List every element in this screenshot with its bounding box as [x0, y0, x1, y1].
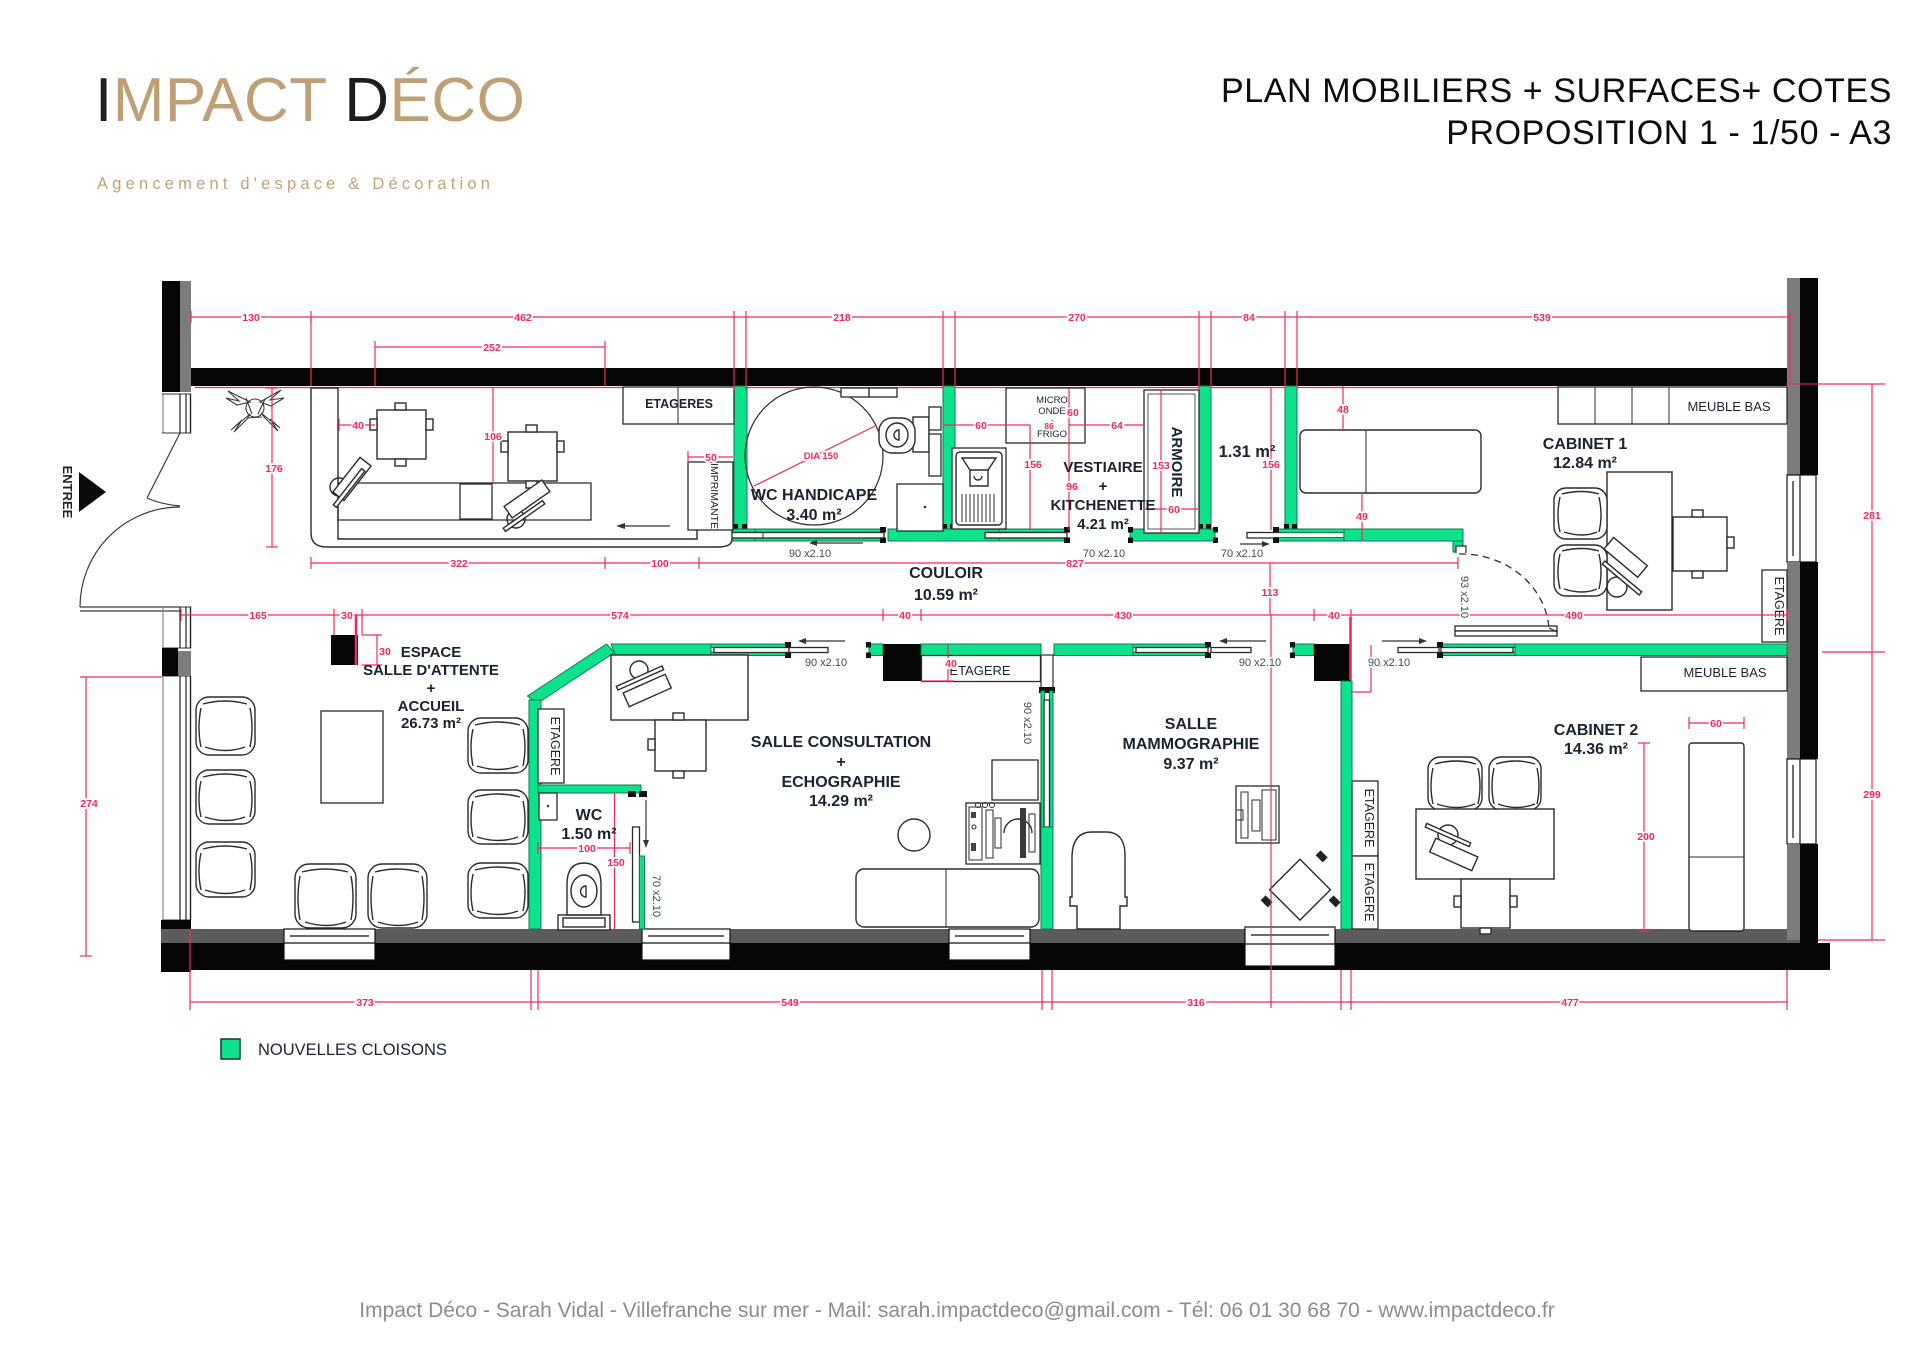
svg-text:WC: WC — [576, 807, 603, 824]
svg-text:549: 549 — [781, 997, 799, 1009]
svg-text:281: 281 — [1863, 510, 1881, 522]
svg-text:9.37 m²: 9.37 m² — [1163, 756, 1218, 773]
svg-text:200: 200 — [1637, 831, 1655, 843]
svg-text:ENTREE: ENTREE — [60, 466, 75, 519]
svg-text:14.36 m²: 14.36 m² — [1564, 741, 1628, 758]
svg-text:156: 156 — [1024, 459, 1042, 471]
svg-text:1.50 m²: 1.50 m² — [561, 826, 616, 843]
svg-text:ESPACE: ESPACE — [401, 644, 462, 661]
svg-text:86: 86 — [1044, 421, 1054, 431]
svg-text:539: 539 — [1533, 312, 1551, 324]
svg-text:30: 30 — [379, 646, 391, 658]
svg-text:CABINET 2: CABINET 2 — [1554, 722, 1639, 739]
svg-text:WC HANDICAPE: WC HANDICAPE — [751, 487, 878, 504]
svg-text:ETAGERE: ETAGERE — [1362, 789, 1376, 848]
svg-text:252: 252 — [483, 342, 501, 354]
svg-text:40: 40 — [899, 610, 911, 622]
svg-text:+: + — [836, 754, 845, 771]
svg-text:477: 477 — [1561, 997, 1579, 1009]
svg-text:+: + — [1099, 478, 1108, 495]
svg-text:NOUVELLES CLOISONS: NOUVELLES CLOISONS — [258, 1041, 447, 1059]
svg-text:49: 49 — [1356, 511, 1368, 523]
svg-text:70 x2.10: 70 x2.10 — [650, 875, 662, 917]
svg-text:373: 373 — [356, 997, 374, 1009]
svg-text:MEUBLE BAS: MEUBLE BAS — [1683, 665, 1766, 680]
svg-text:100: 100 — [578, 843, 596, 855]
svg-text:3.40 m²: 3.40 m² — [786, 507, 841, 524]
svg-text:90 x2.10: 90 x2.10 — [1239, 657, 1281, 669]
svg-text:PLAN MOBILIERS + SURFACES+ COT: PLAN MOBILIERS + SURFACES+ COTES — [1221, 72, 1892, 110]
svg-text:574: 574 — [611, 610, 629, 622]
svg-text:60: 60 — [1710, 718, 1722, 730]
svg-text:93 x2.10: 93 x2.10 — [1458, 576, 1470, 618]
svg-text:ONDE: ONDE — [1038, 406, 1065, 417]
svg-text:827: 827 — [1066, 558, 1084, 570]
svg-text:CABINET 1: CABINET 1 — [1543, 436, 1628, 453]
svg-text:SALLE CONSULTATION: SALLE CONSULTATION — [751, 734, 931, 751]
svg-text:10.59 m²: 10.59 m² — [914, 587, 978, 604]
svg-text:ETAGERE: ETAGERE — [548, 717, 562, 776]
svg-text:4.21 m²: 4.21 m² — [1077, 516, 1129, 533]
svg-text:DIA 150: DIA 150 — [804, 451, 839, 462]
svg-text:COULOIR: COULOIR — [909, 565, 983, 582]
svg-text:+: + — [427, 680, 436, 697]
svg-text:ETAGERE: ETAGERE — [1772, 577, 1786, 636]
svg-text:299: 299 — [1863, 789, 1881, 801]
svg-text:322: 322 — [450, 558, 468, 570]
svg-text:153: 153 — [1152, 460, 1170, 472]
svg-text:84: 84 — [1243, 312, 1255, 324]
svg-text:ETAGERES: ETAGERES — [645, 397, 713, 411]
svg-text:60: 60 — [975, 420, 987, 432]
svg-text:14.29 m²: 14.29 m² — [809, 793, 873, 810]
svg-text:MEUBLE BAS: MEUBLE BAS — [1687, 399, 1770, 414]
svg-text:113: 113 — [1262, 587, 1279, 599]
svg-text:ARMOIRE: ARMOIRE — [1168, 427, 1185, 498]
svg-text:ETAGERE: ETAGERE — [1362, 863, 1376, 922]
svg-text:64: 64 — [1111, 420, 1123, 432]
svg-text:40: 40 — [945, 658, 957, 670]
svg-text:60: 60 — [1168, 504, 1180, 516]
svg-text:26.73 m²: 26.73 m² — [401, 715, 461, 732]
svg-text:96: 96 — [1066, 481, 1078, 493]
svg-text:ETAGERE: ETAGERE — [949, 663, 1010, 678]
svg-text:90 x2.10: 90 x2.10 — [1368, 657, 1410, 669]
svg-text:48: 48 — [1337, 404, 1349, 416]
svg-text:Impact Déco - Sarah Vidal - Vi: Impact Déco - Sarah Vidal - Villefranche… — [359, 1299, 1554, 1322]
svg-text:ACCUEIL: ACCUEIL — [398, 698, 465, 715]
svg-text:1.31 m²: 1.31 m² — [1219, 443, 1276, 461]
svg-text:40: 40 — [352, 420, 364, 432]
svg-text:KITCHENETTE: KITCHENETTE — [1051, 497, 1156, 514]
svg-text:60: 60 — [1067, 407, 1079, 419]
svg-text:150: 150 — [607, 857, 625, 869]
svg-text:SALLE: SALLE — [1165, 716, 1218, 733]
svg-text:130: 130 — [242, 312, 260, 324]
svg-text:270: 270 — [1068, 312, 1086, 324]
svg-text:70 x2.10: 70 x2.10 — [1083, 548, 1125, 560]
svg-text:90 x2.10: 90 x2.10 — [789, 548, 831, 560]
svg-text:90 x2.10: 90 x2.10 — [805, 657, 847, 669]
svg-text:PROPOSITION 1 - 1/50 - A3: PROPOSITION 1 - 1/50 - A3 — [1446, 114, 1892, 152]
svg-text:MICRO: MICRO — [1036, 395, 1068, 406]
svg-text:490: 490 — [1565, 610, 1583, 622]
svg-text:30: 30 — [341, 610, 353, 622]
svg-text:SALLE D'ATTENTE: SALLE D'ATTENTE — [363, 662, 499, 679]
svg-text:MAMMOGRAPHIE: MAMMOGRAPHIE — [1123, 736, 1260, 753]
svg-text:70 x2.10: 70 x2.10 — [1221, 548, 1263, 560]
svg-text:165: 165 — [249, 610, 267, 622]
svg-text:40: 40 — [1328, 610, 1340, 622]
svg-text:462: 462 — [514, 312, 532, 324]
svg-text:430: 430 — [1114, 610, 1132, 622]
svg-text:Agencement d'espace & Décorati: Agencement d'espace & Décoration — [97, 175, 494, 193]
svg-text:316: 316 — [1187, 997, 1205, 1009]
svg-text:176: 176 — [265, 463, 283, 475]
svg-text:106: 106 — [484, 431, 502, 443]
svg-text:12.84 m²: 12.84 m² — [1553, 455, 1617, 472]
svg-text:ECHOGRAPHIE: ECHOGRAPHIE — [781, 774, 900, 791]
svg-text:100: 100 — [651, 558, 669, 570]
svg-text:50: 50 — [705, 452, 717, 464]
svg-text:90 x2.10: 90 x2.10 — [1021, 702, 1033, 744]
svg-text:VESTIAIRE: VESTIAIRE — [1063, 459, 1142, 476]
svg-text:218: 218 — [833, 312, 851, 324]
svg-text:IMPACT DÉCO: IMPACT DÉCO — [95, 66, 525, 135]
svg-text:274: 274 — [80, 798, 98, 810]
svg-text:IMPRIMANTE: IMPRIMANTE — [708, 463, 720, 529]
